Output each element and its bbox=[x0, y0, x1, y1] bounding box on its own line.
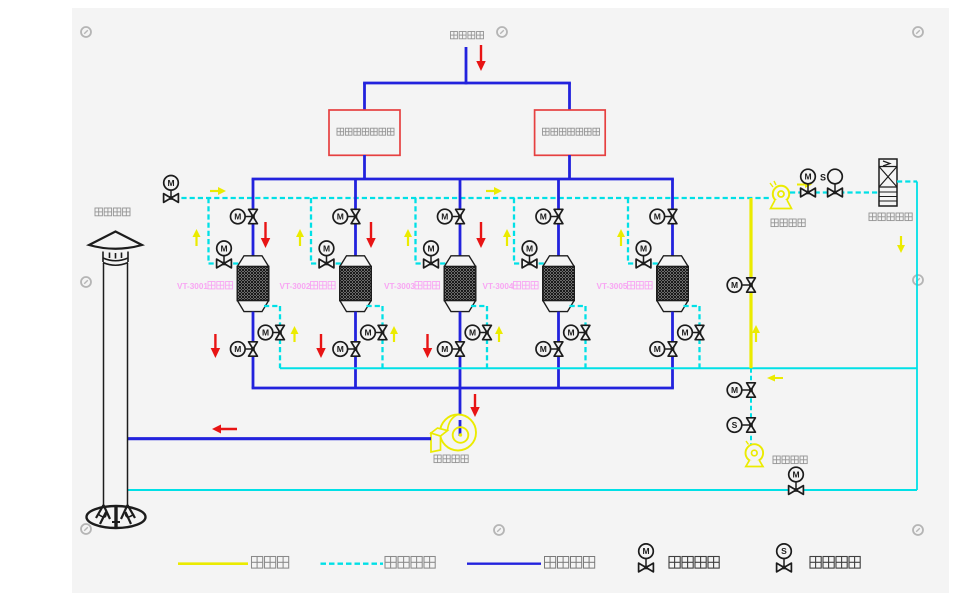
svg-text:M: M bbox=[731, 385, 738, 395]
svg-text:M: M bbox=[654, 344, 661, 354]
svg-text:S: S bbox=[820, 173, 826, 183]
svg-text:M: M bbox=[540, 344, 547, 354]
svg-text:M: M bbox=[337, 344, 344, 354]
svg-text:M: M bbox=[526, 243, 533, 253]
svg-text:VT-3005: VT-3005 bbox=[597, 282, 628, 291]
svg-text:M: M bbox=[681, 328, 688, 338]
svg-text:S: S bbox=[781, 546, 787, 556]
svg-text:M: M bbox=[441, 344, 448, 354]
svg-text:M: M bbox=[441, 212, 448, 222]
svg-text:M: M bbox=[323, 243, 330, 253]
svg-text:M: M bbox=[234, 344, 241, 354]
svg-text:VT-3004: VT-3004 bbox=[483, 282, 514, 291]
svg-text:M: M bbox=[364, 328, 371, 338]
svg-text:M: M bbox=[804, 172, 811, 182]
svg-text:M: M bbox=[640, 243, 647, 253]
svg-text:M: M bbox=[731, 280, 738, 290]
svg-text:VT-3003: VT-3003 bbox=[384, 282, 415, 291]
svg-text:M: M bbox=[234, 212, 241, 222]
svg-text:S: S bbox=[732, 420, 738, 430]
svg-text:M: M bbox=[654, 212, 661, 222]
svg-text:M: M bbox=[337, 212, 344, 222]
svg-text:M: M bbox=[427, 243, 434, 253]
svg-text:M: M bbox=[167, 178, 174, 188]
svg-text:M: M bbox=[642, 546, 649, 556]
svg-text:M: M bbox=[567, 328, 574, 338]
svg-text:M: M bbox=[469, 328, 476, 338]
svg-text:VT-3002: VT-3002 bbox=[280, 282, 311, 291]
svg-text:M: M bbox=[262, 328, 269, 338]
svg-text:M: M bbox=[540, 212, 547, 222]
svg-text:M: M bbox=[792, 470, 799, 480]
svg-text:M: M bbox=[220, 243, 227, 253]
svg-text:VT-3001: VT-3001 bbox=[177, 282, 208, 291]
